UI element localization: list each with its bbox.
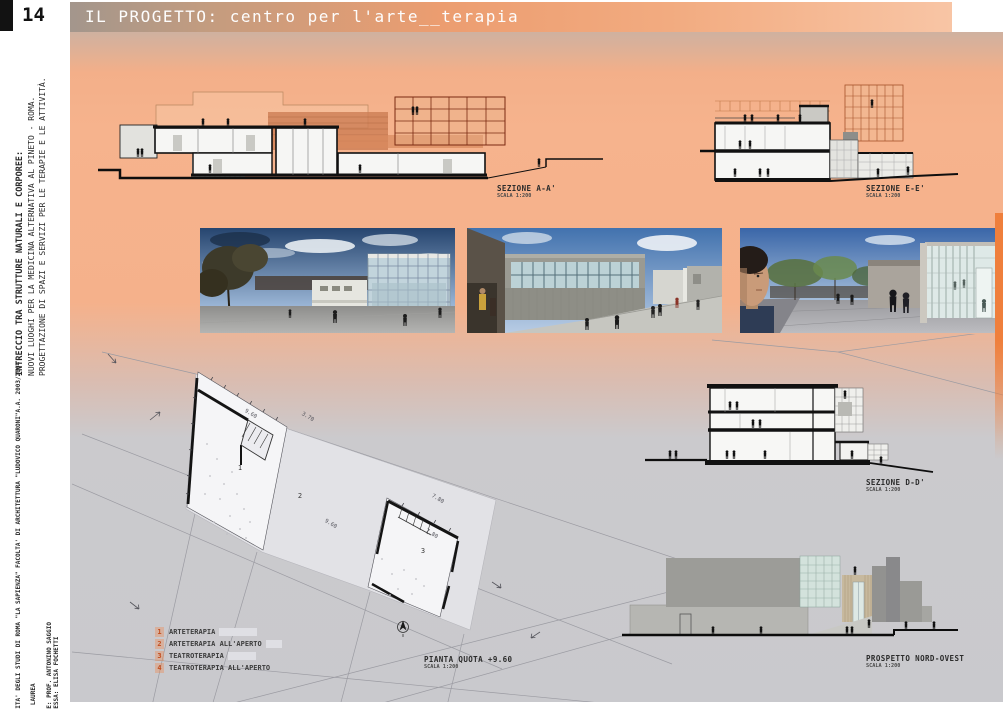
- left-sidebar: INTRECCIO TRA STRUTTURE NATURALI E CORPO…: [0, 31, 70, 709]
- room-number-3: 3: [421, 547, 425, 555]
- render-exterior-plaza: [200, 228, 455, 333]
- glass-facade: [920, 242, 995, 323]
- white-building: [312, 280, 367, 308]
- thesis-type: TESI DI LAUREA: [30, 401, 37, 709]
- section-dd-label: SEZIONE D-D' SCALA 1:200: [866, 478, 925, 494]
- figure-icon: [905, 621, 908, 630]
- dimension-label: 3.70: [300, 411, 314, 423]
- legend-swatch: [266, 640, 282, 648]
- project-subtitle-1: NUOVI LUOGHI PER LA MEDICINA ALTERNATIVA…: [26, 88, 37, 376]
- render-entrance-view: [740, 228, 995, 333]
- project-subtitle-2: PROGETTAZIONE DI SPAZI E SERVIZI PER LE …: [37, 88, 48, 376]
- figure-icon: [675, 450, 678, 459]
- legend-label: ARTETERAPIA: [169, 628, 215, 636]
- section-dd-drawing: [645, 372, 935, 477]
- legend-item: 1ARTETERAPIA: [155, 627, 282, 639]
- page-title: IL PROGETTO: centro per l'arte__terapia: [85, 7, 519, 26]
- legend-swatch: [219, 628, 257, 636]
- room-number-1: 1: [238, 464, 242, 472]
- legend-item: 3TEATROTERAPIA: [155, 651, 282, 663]
- tree-line: [770, 286, 885, 298]
- plan-label: PIANTA QUOTA +9.60 SCALA 1:200: [424, 655, 512, 671]
- cloud: [637, 235, 697, 251]
- building-section: [715, 114, 830, 182]
- grid-structure: [395, 97, 505, 145]
- north-arrow-icon: [398, 621, 409, 638]
- ground-line: [645, 460, 933, 472]
- base-volume: [630, 605, 808, 635]
- university-name: UNIVERSITA' DEGLI STUDI DI ROMA "LA SAPI…: [15, 413, 22, 709]
- legend-swatch: [228, 652, 256, 660]
- timber-siding-volume: [842, 575, 872, 622]
- render-ramp-view: [467, 228, 722, 333]
- section-ee-label: SEZIONE E-E' SCALA 1:200: [866, 184, 925, 200]
- legend-number: 4: [155, 663, 164, 673]
- elevation-nw-drawing: [618, 546, 998, 646]
- figure-icon: [933, 621, 936, 630]
- plaza-ground: [200, 306, 455, 333]
- legend: 1ARTETERAPIA 2ARTETERAPIA ALL'APERTO 3TE…: [155, 627, 282, 675]
- figure-icon: [538, 158, 541, 167]
- legend-item: 4TEATROTERAPIA ALL'APERTO: [155, 663, 282, 675]
- figure-icon: [669, 450, 672, 459]
- glass-grid-panel: [800, 556, 840, 607]
- legend-number: 1: [155, 627, 164, 637]
- legend-label: TEATROTERAPIA ALL'APERTO: [169, 664, 270, 672]
- legend-label: ARTETERAPIA ALL'APERTO: [169, 640, 262, 648]
- legend-number: 2: [155, 639, 164, 649]
- left-rock-mass: [467, 228, 505, 333]
- grid-structure: [835, 388, 863, 432]
- stepped-volumes: [872, 557, 932, 622]
- section-ee-drawing: [700, 78, 970, 190]
- presentation-board: 9.60 3.70 9.60 7.80 7.80 1 2 3: [0, 0, 1003, 709]
- student-name: STUDENTESSA: ELISA FOCHETTI: [53, 401, 60, 709]
- page-number: 14: [13, 0, 70, 31]
- cloud: [502, 232, 552, 244]
- right-accent-strip: [995, 213, 1003, 459]
- academic-year: A.A. 2003/2004: [15, 362, 22, 413]
- advisor-name: RELATORE: PROF. ANTONINO SAGGIO: [46, 401, 53, 709]
- building-section: [707, 384, 838, 462]
- legend-number: 3: [155, 651, 164, 661]
- bottom-margin: [0, 702, 1003, 709]
- room-number-2: 2: [298, 492, 302, 500]
- legend-label: TEATROTERAPIA: [169, 652, 224, 660]
- main-volume: [666, 558, 800, 607]
- legend-item: 2ARTETERAPIA ALL'APERTO: [155, 639, 282, 651]
- project-title: INTRECCIO TRA STRUTTURE NATURALI E CORPO…: [15, 88, 26, 376]
- elevation-nw-label: PROSPETTO NORD-OVEST SCALA 1:200: [866, 654, 964, 670]
- cloud: [865, 235, 915, 245]
- project-title-block: INTRECCIO TRA STRUTTURE NATURALI E CORPO…: [15, 88, 48, 376]
- thesis-credits-block: UNIVERSITA' DEGLI STUDI DI ROMA "LA SAPI…: [15, 401, 60, 709]
- section-aa-drawing: [98, 55, 613, 190]
- figure-icon: [854, 566, 857, 575]
- header-bar: IL PROGETTO: centro per l'arte__terapia: [70, 2, 952, 32]
- section-aa-label: SEZIONE A-A' SCALA 1:200: [497, 184, 556, 200]
- main-building: [505, 254, 645, 320]
- glass-building: [368, 254, 450, 312]
- corner-black-tab: [0, 0, 13, 31]
